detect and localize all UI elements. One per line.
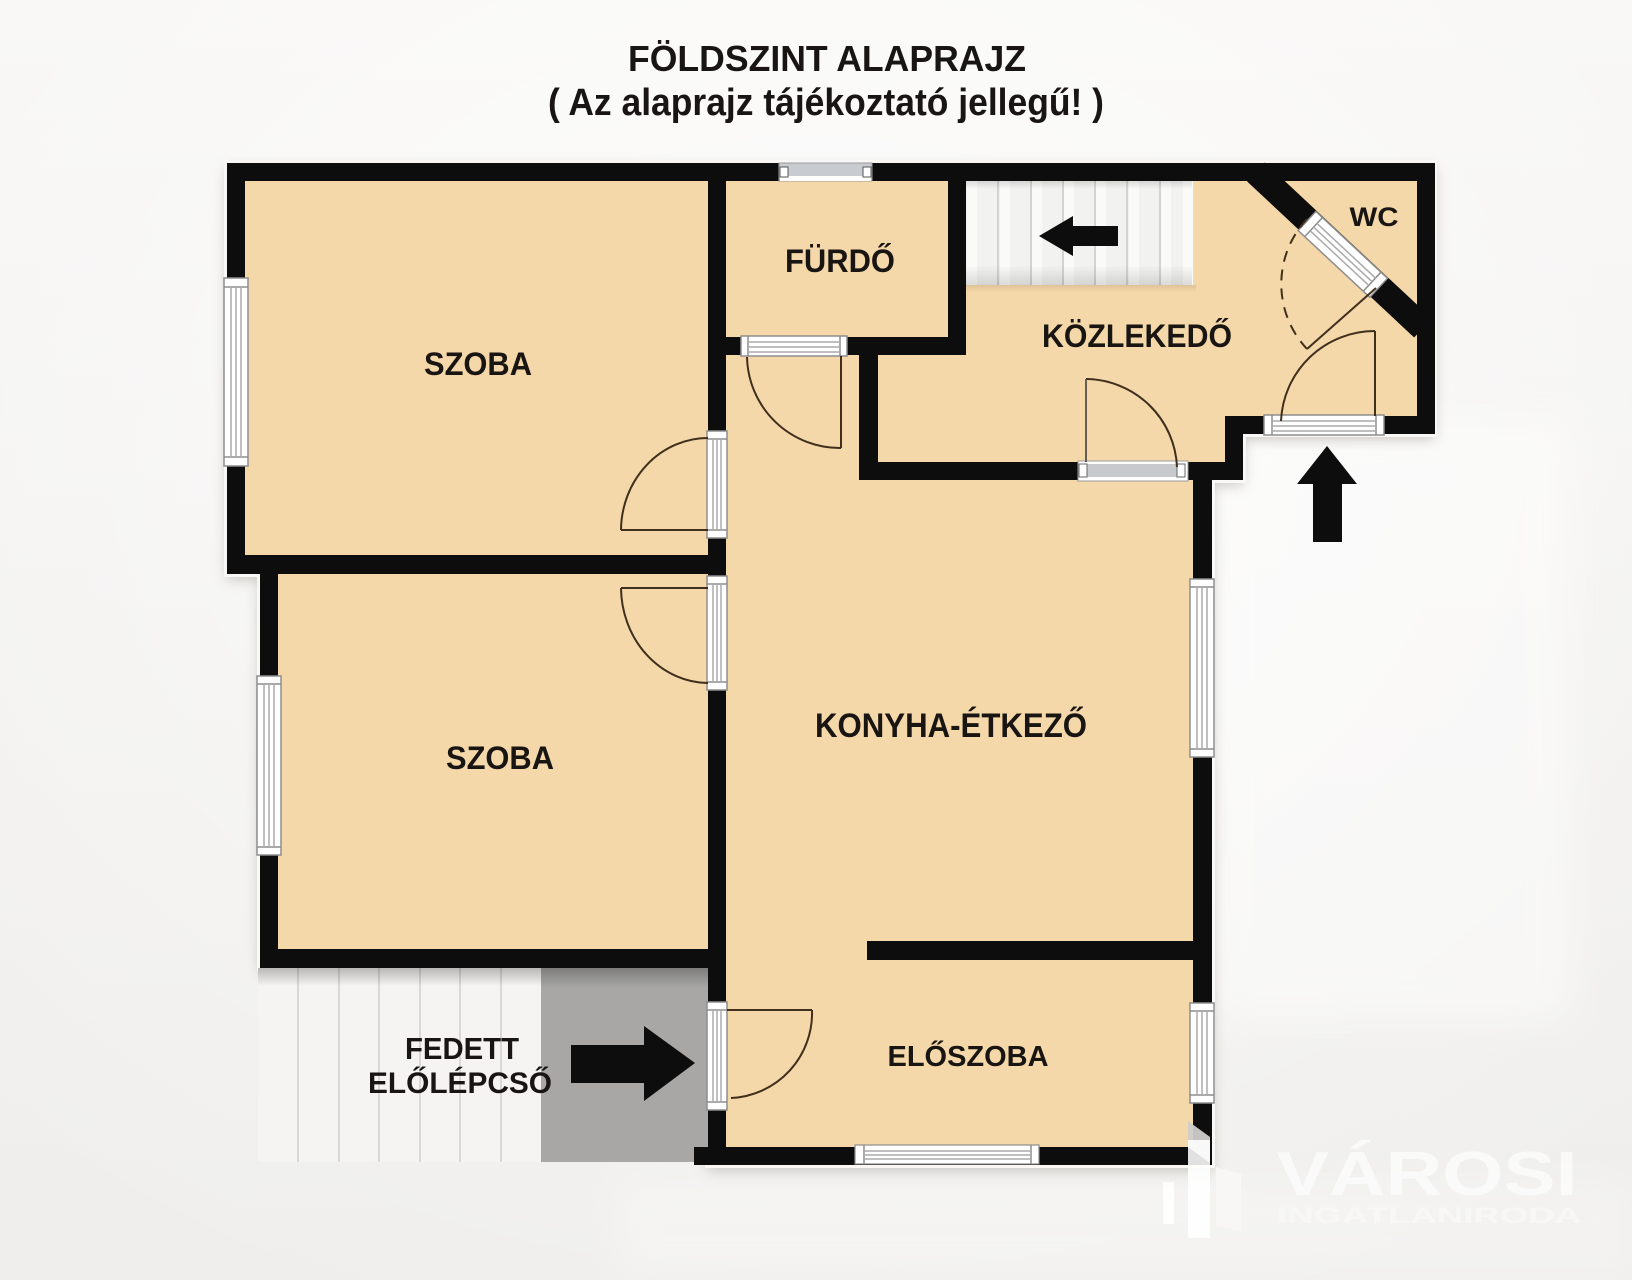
svg-text:INGATLANIRODA: INGATLANIRODA	[1277, 1203, 1581, 1228]
svg-text:KÖZLEKEDŐ: KÖZLEKEDŐ	[1042, 318, 1232, 354]
svg-text:SZOBA: SZOBA	[446, 740, 554, 776]
svg-text:SZOBA: SZOBA	[424, 346, 532, 382]
svg-text:ELŐSZOBA: ELŐSZOBA	[888, 1039, 1049, 1073]
svg-text:WC: WC	[1350, 202, 1399, 232]
svg-text:FÜRDŐ: FÜRDŐ	[785, 243, 895, 279]
svg-text:VÁROSI: VÁROSI	[1277, 1140, 1578, 1209]
svg-text:ELŐLÉPCSŐ: ELŐLÉPCSŐ	[368, 1066, 552, 1100]
svg-text:FEDETT: FEDETT	[405, 1031, 519, 1066]
svg-text:KONYHA-ÉTKEZŐ: KONYHA-ÉTKEZŐ	[815, 707, 1087, 745]
svg-text:( Az alaprajz tájékoztató jell: ( Az alaprajz tájékoztató jellegű! )	[548, 82, 1104, 124]
svg-text:FÖLDSZINT ALAPRAJZ: FÖLDSZINT ALAPRAJZ	[628, 38, 1026, 79]
